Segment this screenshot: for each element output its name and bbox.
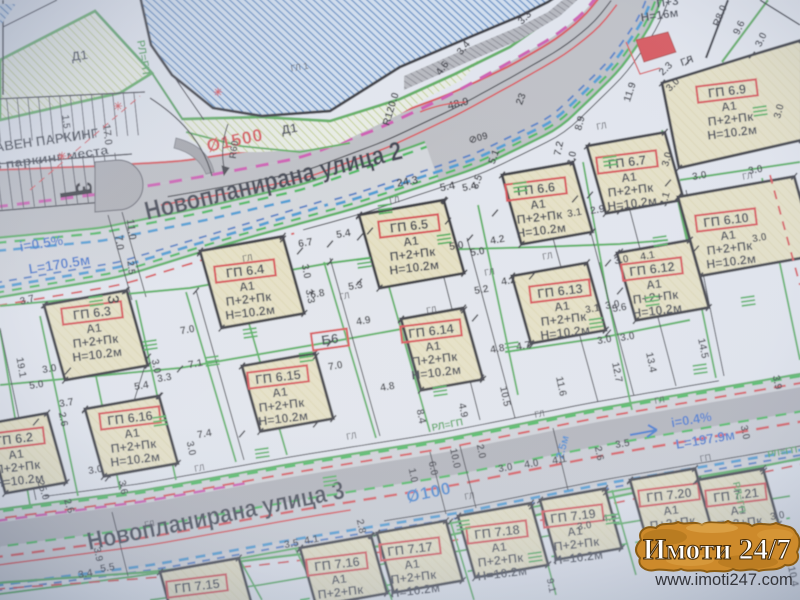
svg-text:Имоти 24/7: Имоти 24/7: [643, 533, 791, 566]
svg-text:www.imoti247.com: www.imoti247.com: [654, 571, 793, 589]
